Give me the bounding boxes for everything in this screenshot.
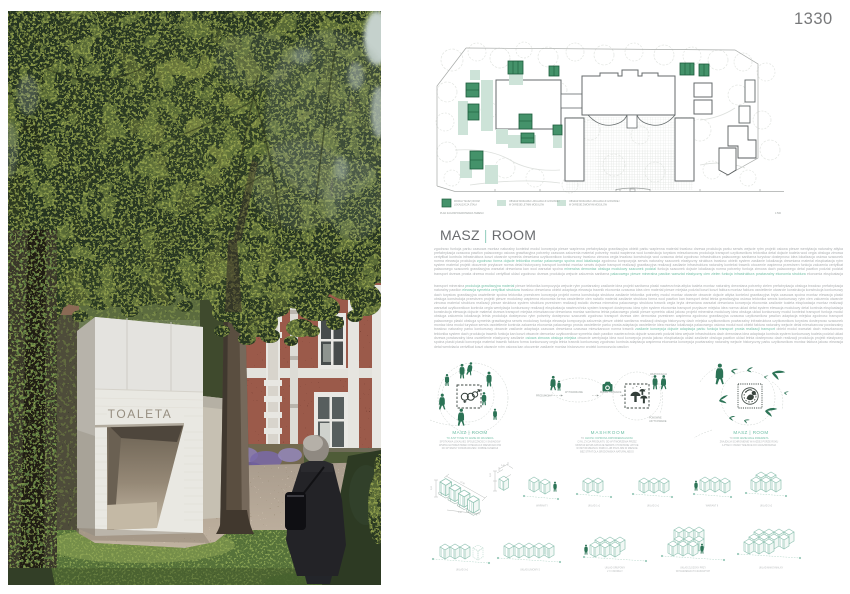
svg-text:TOALETA: TOALETA (108, 407, 173, 421)
svg-text:MASHROOM: MASHROOM (591, 430, 626, 435)
svg-text:UKLAD 3+1: UKLAD 3+1 (456, 569, 469, 572)
svg-text:14,40: 14,40 (460, 481, 466, 486)
svg-text:2 X 3 MODULY: 2 X 3 MODULY (607, 571, 623, 573)
svg-text:UKLAD 2+1: UKLAD 2+1 (647, 505, 660, 508)
svg-text:3,00: 3,00 (490, 472, 492, 477)
svg-text:WARIANT II: WARIANT II (706, 505, 719, 508)
svg-text:MAGAZYNOWANIE: MAGAZYNOWANIE (600, 391, 622, 394)
svg-text:WARIANT I: WARIANT I (536, 505, 548, 508)
svg-text:MODULY MASZ | ROOM: MODULY MASZ | ROOM (454, 200, 480, 203)
svg-text:UKLAD GRUPOWY: UKLAD GRUPOWY (605, 567, 626, 570)
svg-text:A PTAKI I OWADY MIEJSCE DO GNI: A PTAKI I OWADY MIEJSCE DO GNIAZDOWANIA (722, 444, 777, 447)
svg-text:UKLAD ZLOZONY PRZY: UKLAD ZLOZONY PRZY (680, 567, 706, 570)
svg-text:BEZ STRAT DLA SRODOWISKA NATUR: BEZ STRAT DLA SRODOWISKA NATURALNEGO (580, 451, 634, 454)
svg-text:WERYFIKACJA: WERYFIKACJA (650, 373, 667, 376)
svg-text:WYDARZENIACH CZASOWYCH: WYDARZENIACH CZASOWYCH (676, 570, 711, 573)
svg-text:W OKRESIE ZIMOWYM MODULOW: W OKRESIE ZIMOWYM MODULOW (569, 205, 608, 207)
svg-text:UZYTKOWANIE: UZYTKOWANIE (649, 420, 667, 423)
svg-text:MASZ | ROOM: MASZ | ROOM (452, 430, 487, 435)
svg-text:W OKRESIE LETNIM MODULOW: W OKRESIE LETNIM MODULOW (509, 205, 545, 207)
svg-text:MASZ | ROOM: MASZ | ROOM (733, 430, 768, 435)
svg-text:UKLAD 2+2: UKLAD 2+2 (760, 505, 773, 508)
svg-text:OBSZAR MOZLIWEJ LOKALIZACJI CZ: OBSZAR MOZLIWEJ LOKALIZACJI CZASOWEJ (569, 200, 619, 203)
svg-text:2,40: 2,40 (458, 512, 463, 514)
svg-text:3,00: 3,00 (431, 485, 433, 490)
svg-text:1:500: 1:500 (775, 212, 782, 215)
svg-text:2,40: 2,40 (501, 465, 506, 467)
svg-text:PLAN ZAGOSPODAROWANIA TERENU: PLAN ZAGOSPODAROWANIA TERENU (440, 212, 484, 215)
svg-text:DO WYMIANY DOSWIADCZEN I DOBRE: DO WYMIANY DOSWIADCZEN I DOBREJ ENERGII (442, 447, 499, 450)
svg-text:OBSZAR MOZLIWEJ LOKALIZACJI CZ: OBSZAR MOZLIWEJ LOKALIZACJI CZASOWEJ (509, 200, 559, 203)
svg-text:UKLAD LINIOWY 5: UKLAD LINIOWY 5 (520, 569, 541, 572)
svg-text:PRODUKCJA ?: PRODUKCJA ? (536, 394, 553, 397)
svg-text:WYTWARZANIE: WYTWARZANIE (565, 391, 583, 394)
svg-text:LOKALIZACJA STALA: LOKALIZACJA STALA (454, 204, 477, 207)
svg-text:UKLAD 1+1: UKLAD 1+1 (588, 505, 601, 508)
svg-text:UKLAD MAKSYMALNY: UKLAD MAKSYMALNY (759, 567, 784, 570)
